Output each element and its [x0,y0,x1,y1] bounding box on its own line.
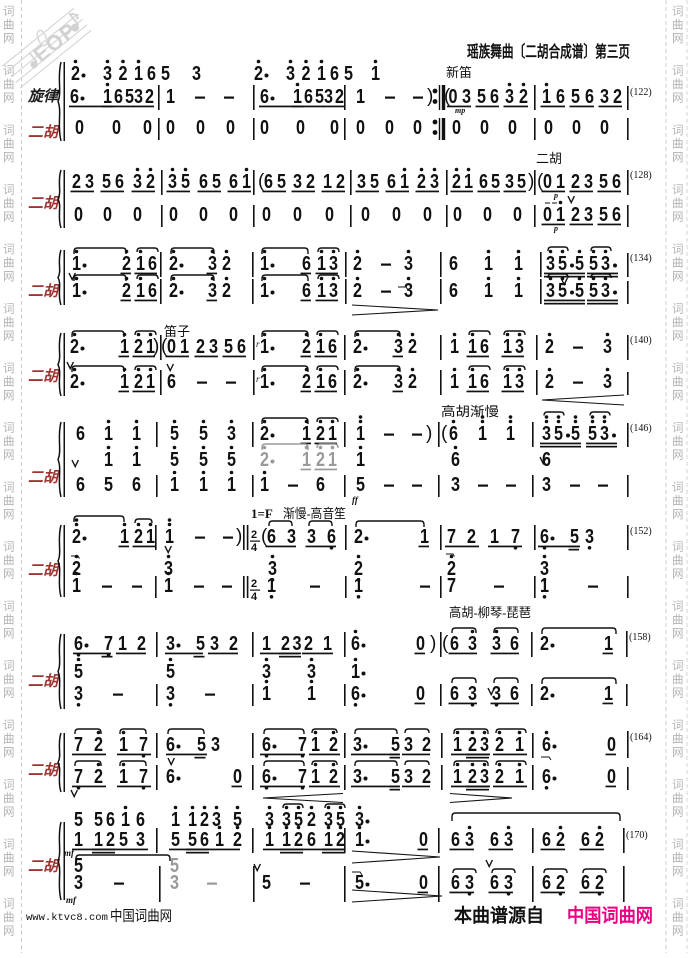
svg-text:2: 2 [353,280,362,302]
svg-text:6: 6 [387,171,396,193]
svg-text:词: 词 [3,422,15,435]
svg-text:5: 5 [181,171,190,193]
svg-text:1: 1 [503,371,512,393]
svg-text:5: 5 [588,423,597,445]
svg-text:二胡: 二胡 [28,469,61,486]
svg-text:5: 5 [74,809,83,831]
svg-text:3: 3 [134,86,143,108]
svg-text:曲: 曲 [672,376,684,389]
svg-text:): ) [236,526,242,547]
svg-text:1: 1 [215,829,224,851]
svg-text:2: 2 [468,766,477,788]
svg-text:7: 7 [298,734,307,756]
svg-text:1: 1 [146,526,155,548]
svg-text:1: 1 [121,809,130,831]
svg-text:1: 1 [450,336,459,358]
svg-text:7: 7 [447,575,456,597]
svg-text:二胡: 二胡 [28,562,61,579]
svg-text:5: 5 [199,423,208,445]
svg-text:网: 网 [672,271,684,283]
svg-text:2: 2 [408,371,417,393]
svg-text:二胡: 二胡 [28,368,61,385]
svg-text:词: 词 [672,243,684,256]
svg-text:3: 3 [208,253,217,275]
svg-text:1: 1 [260,336,269,358]
svg-text:1: 1 [242,171,251,193]
svg-text:二胡: 二胡 [28,858,61,875]
svg-text:3: 3 [492,633,501,655]
svg-text:6: 6 [351,683,360,705]
svg-text:5: 5 [570,526,579,548]
svg-text:曲: 曲 [3,257,15,270]
svg-text:二胡: 二胡 [28,673,61,690]
svg-text:1: 1 [119,766,128,788]
svg-text:): ) [153,336,159,357]
svg-text:3: 3 [394,371,403,393]
svg-text:1: 1 [604,683,613,705]
svg-text:1: 1 [227,474,236,496]
svg-text:2: 2 [595,829,604,851]
svg-text:3: 3 [211,734,220,756]
svg-text:3: 3 [600,86,609,108]
svg-text:6: 6 [147,63,156,85]
svg-text:6: 6 [479,171,488,193]
svg-text:5: 5 [589,253,598,275]
svg-text:0: 0 [296,117,305,139]
svg-text:曲: 曲 [3,614,15,627]
svg-text:3: 3 [584,171,593,193]
svg-text:2: 2 [122,253,131,275]
svg-text:曲: 曲 [672,197,684,210]
svg-text:): ) [427,86,433,107]
svg-text:2: 2 [72,526,81,548]
svg-text:3: 3 [353,766,362,788]
svg-text:1: 1 [317,280,326,302]
svg-text:5: 5 [356,474,365,496]
svg-text:2: 2 [613,86,622,108]
svg-text:1: 1 [356,423,365,445]
svg-text:6: 6 [542,872,551,894]
svg-text:1: 1 [514,280,523,302]
svg-text:二胡: 二胡 [28,283,61,300]
svg-text:0: 0 [166,117,175,139]
svg-text:6: 6 [450,683,459,705]
svg-text:2: 2 [302,63,311,85]
svg-text:二胡: 二胡 [28,762,61,779]
svg-text:6: 6 [450,633,459,655]
svg-text:3: 3 [133,171,142,193]
svg-text:3: 3 [504,872,513,894]
svg-text:词: 词 [3,303,15,316]
svg-text:6: 6 [542,734,551,756]
svg-text:0: 0 [423,204,432,226]
svg-text:曲: 曲 [3,792,15,805]
svg-text:曲: 曲 [672,911,684,924]
svg-text:2: 2 [316,423,325,445]
svg-text:1: 1 [317,253,326,275]
svg-text:2: 2 [595,872,604,894]
svg-text:1: 1 [484,280,493,302]
svg-text:网: 网 [672,569,684,581]
svg-text:1: 1 [323,171,332,193]
svg-text:5: 5 [558,280,567,302]
svg-text:6: 6 [114,86,123,108]
svg-text:5: 5 [188,829,197,851]
svg-text:1: 1 [164,575,173,597]
svg-text:5: 5 [196,633,205,655]
svg-text:1: 1 [540,575,549,597]
svg-text:1: 1 [188,809,197,831]
svg-text:3: 3 [542,474,551,496]
svg-text:6: 6 [328,371,337,393]
svg-text:2: 2 [233,829,242,851]
svg-text:6: 6 [328,336,337,358]
svg-text:网: 网 [3,569,15,581]
svg-text:0: 0 [169,204,178,226]
svg-text:5: 5 [166,661,175,683]
svg-text:3: 3 [192,63,201,85]
svg-text:2: 2 [422,766,431,788]
svg-text:6: 6 [585,86,594,108]
svg-text:3: 3 [324,86,333,108]
svg-text:网: 网 [3,450,15,462]
svg-text:网: 网 [672,93,684,105]
svg-text:1: 1 [420,526,429,548]
svg-text:3: 3 [430,171,439,193]
svg-text:5: 5 [262,872,271,894]
svg-text:1: 1 [118,633,127,655]
svg-text:5: 5 [227,449,236,471]
svg-text:2: 2 [304,633,313,655]
svg-text:(: ( [441,423,448,444]
svg-text:1: 1 [478,423,487,445]
svg-text:6: 6 [74,633,83,655]
svg-text:r: r [256,374,260,384]
svg-text:网: 网 [672,688,684,700]
svg-text:词: 词 [3,243,15,256]
svg-text:(170): (170) [626,830,648,841]
svg-text:1: 1 [136,253,145,275]
svg-text:3: 3 [601,253,610,275]
svg-text:5: 5 [370,171,379,193]
svg-text:网: 网 [3,33,15,45]
svg-text:词: 词 [672,5,684,18]
svg-text:2: 2 [302,371,311,393]
svg-text:1: 1 [506,423,515,445]
svg-text:5: 5 [599,171,608,193]
svg-text:3: 3 [404,253,413,275]
svg-text:3: 3 [287,526,296,548]
svg-text:3: 3 [468,683,477,705]
svg-text:2: 2 [540,683,549,705]
svg-text:2: 2 [70,371,79,393]
svg-text:2: 2 [468,734,477,756]
svg-text:6: 6 [229,171,238,193]
svg-text:0: 0 [600,117,609,139]
svg-text:3: 3 [465,872,474,894]
svg-text:(140): (140) [630,335,652,346]
svg-text:2: 2 [545,336,554,358]
svg-text:0: 0 [199,204,208,226]
svg-text:0: 0 [416,683,425,705]
svg-text:3: 3 [546,253,555,275]
svg-text:网: 网 [672,509,684,521]
svg-text:(146): (146) [630,423,652,434]
svg-text:曲: 曲 [672,435,684,448]
svg-text:3: 3 [286,63,295,85]
svg-text:0: 0 [544,117,553,139]
svg-text:词: 词 [672,65,684,78]
svg-text:ff: ff [352,495,359,505]
svg-text:0: 0 [480,117,489,139]
svg-text:5: 5 [104,474,113,496]
svg-text:): ) [528,171,534,192]
svg-text:词: 词 [3,660,15,673]
svg-text:1: 1 [302,423,311,445]
svg-text:5: 5 [599,204,608,226]
svg-text:6: 6 [302,280,311,302]
svg-text:0: 0 [607,734,616,756]
svg-text:网: 网 [3,807,15,819]
svg-text:5: 5 [171,829,180,851]
svg-text:网: 网 [3,152,15,164]
svg-text:5: 5 [589,280,598,302]
svg-text:5: 5 [315,86,324,108]
svg-text:网: 网 [672,807,684,819]
svg-text:1: 1 [307,683,316,705]
svg-text:1: 1 [317,63,326,85]
svg-text:0: 0 [452,117,461,139]
svg-text:5: 5 [170,423,179,445]
svg-text:0: 0 [262,204,271,226]
svg-text:1: 1 [316,336,325,358]
svg-text:词: 词 [672,422,684,435]
svg-text:(158): (158) [629,632,651,643]
svg-text:7: 7 [104,633,113,655]
svg-text:1: 1 [260,371,269,393]
svg-text:1: 1 [72,280,81,302]
svg-text:6: 6 [167,371,176,393]
svg-text:3: 3 [465,829,474,851]
svg-text:3: 3 [601,280,610,302]
svg-text:p: p [553,224,558,233]
svg-text:曲: 曲 [3,733,15,746]
svg-text:中国词曲网: 中国词曲网 [567,905,653,926]
svg-text:2: 2 [260,449,269,471]
svg-text:6: 6 [260,86,269,108]
svg-text:6: 6 [612,204,621,226]
svg-text:1: 1 [453,766,462,788]
svg-text:1: 1 [515,766,524,788]
svg-text:6: 6 [540,526,549,548]
svg-text:r: r [450,281,454,291]
svg-text:3: 3 [74,872,83,894]
svg-text:本曲谱源自: 本曲谱源自 [454,905,544,926]
svg-text:6: 6 [612,171,621,193]
svg-text:5: 5 [170,449,179,471]
svg-text:3: 3 [480,766,489,788]
svg-text:1: 1 [371,63,380,85]
svg-text:6: 6 [351,633,360,655]
svg-text:1: 1 [542,86,551,108]
svg-text:词: 词 [672,600,684,613]
svg-text:词: 词 [672,481,684,494]
svg-text:2: 2 [71,63,80,85]
svg-text:0: 0 [75,117,84,139]
svg-text:1: 1 [302,449,311,471]
svg-text:1: 1 [180,336,189,358]
svg-text:词: 词 [672,184,684,197]
svg-text:0: 0 [103,204,112,226]
svg-text:2: 2 [336,829,345,851]
svg-text:0: 0 [133,204,142,226]
svg-text:0: 0 [325,204,334,226]
svg-text:2: 2 [260,423,269,445]
svg-text:7: 7 [298,766,307,788]
svg-text:6: 6 [451,872,460,894]
svg-text:6: 6 [451,829,460,851]
svg-text:3: 3 [480,734,489,756]
svg-text:3: 3 [103,63,112,85]
svg-text:6: 6 [480,371,489,393]
svg-text:3: 3 [404,734,413,756]
svg-text:1: 1 [468,336,477,358]
svg-text:2: 2 [254,63,263,85]
svg-text:3: 3 [504,829,513,851]
svg-text:3: 3 [515,371,524,393]
svg-text:曲: 曲 [3,911,15,924]
svg-text:5: 5 [74,661,83,683]
svg-text:6: 6 [200,829,209,851]
svg-text:6: 6 [449,423,458,445]
svg-text:6: 6 [490,86,499,108]
svg-text:曲: 曲 [3,495,15,508]
svg-text:1=F: 1=F [251,506,273,521]
svg-text:1: 1 [468,371,477,393]
svg-text:6: 6 [262,734,271,756]
svg-text:5: 5 [161,63,170,85]
svg-text:词: 词 [3,898,15,911]
svg-text:曲: 曲 [672,614,684,627]
svg-text:3: 3 [170,872,179,894]
svg-text:5: 5 [391,734,400,756]
svg-text:6: 6 [330,63,339,85]
svg-text:3: 3 [136,829,145,851]
svg-text:2: 2 [134,371,143,393]
svg-text:2: 2 [200,809,209,831]
svg-text:6: 6 [166,734,175,756]
svg-text:0: 0 [453,204,462,226]
svg-text:0: 0 [330,117,339,139]
svg-text:2: 2 [329,766,338,788]
svg-text:5: 5 [197,734,206,756]
svg-text:3: 3 [293,633,302,655]
svg-text:3: 3 [546,280,555,302]
svg-text:3: 3 [404,766,413,788]
svg-text:1: 1 [170,474,179,496]
svg-text:mp: mp [455,106,465,115]
svg-text:2: 2 [222,253,231,275]
svg-text:1: 1 [354,575,363,597]
svg-text:3: 3 [307,526,316,548]
svg-text:3: 3 [603,371,612,393]
svg-text:词: 词 [3,779,15,792]
svg-text:7: 7 [447,526,456,548]
svg-text:0: 0 [196,117,205,139]
svg-text:6: 6 [480,336,489,358]
svg-text:1: 1 [166,86,175,108]
svg-text:网: 网 [672,747,684,759]
svg-text:2: 2 [94,766,103,788]
svg-text:2: 2 [72,171,81,193]
svg-text:曲: 曲 [3,435,15,448]
svg-text:1: 1 [72,253,81,275]
svg-text:2: 2 [106,829,115,851]
svg-text:二胡: 二胡 [536,151,562,166]
svg-text:2: 2 [137,633,146,655]
svg-text:2: 2 [571,171,580,193]
svg-text:1: 1 [146,371,155,393]
svg-text:5: 5 [558,253,567,275]
svg-text:旋律: 旋律 [27,88,60,105]
svg-text:网: 网 [3,628,15,640]
svg-text:2: 2 [134,336,143,358]
svg-text:3: 3 [166,683,175,705]
svg-text:1: 1 [514,253,523,275]
svg-text:0: 0 [392,204,401,226]
svg-text:高胡-柳琴-琵琶: 高胡-柳琴-琵琶 [449,605,531,620]
svg-text:网: 网 [672,450,684,462]
svg-text:词: 词 [3,600,15,613]
svg-text:2: 2 [145,86,154,108]
svg-text:0: 0 [513,204,522,226]
svg-text:1: 1 [355,829,364,851]
svg-text:2: 2 [422,734,431,756]
svg-text:6: 6 [302,253,311,275]
svg-text:0: 0 [607,766,616,788]
svg-text:6: 6 [262,766,271,788]
svg-text:3: 3 [492,683,501,705]
svg-text:2: 2 [353,253,362,275]
svg-text:7: 7 [511,526,520,548]
svg-text:5: 5 [575,280,584,302]
svg-text:1: 1 [490,526,499,548]
svg-text:6: 6 [76,474,85,496]
svg-text:2: 2 [281,633,290,655]
svg-text:5: 5 [94,809,103,831]
svg-text:2: 2 [329,734,338,756]
svg-text:曲: 曲 [672,852,684,865]
svg-text:3: 3 [451,474,460,496]
svg-text:网: 网 [3,747,15,759]
svg-text:6: 6 [304,86,313,108]
svg-text:6: 6 [307,829,316,851]
svg-text:2: 2 [196,336,205,358]
svg-text:1: 1 [351,661,360,683]
svg-text:0: 0 [508,117,517,139]
svg-text:0: 0 [112,117,121,139]
svg-text:1: 1 [282,829,291,851]
svg-text:5: 5 [125,86,134,108]
svg-text:3: 3 [168,171,177,193]
svg-text:2: 2 [222,280,231,302]
svg-text:网: 网 [3,390,15,402]
svg-text:曲: 曲 [3,138,15,151]
svg-text:3: 3 [394,336,403,358]
svg-text:3: 3 [462,86,471,108]
svg-text:5: 5 [571,86,580,108]
svg-text:3: 3 [505,171,514,193]
